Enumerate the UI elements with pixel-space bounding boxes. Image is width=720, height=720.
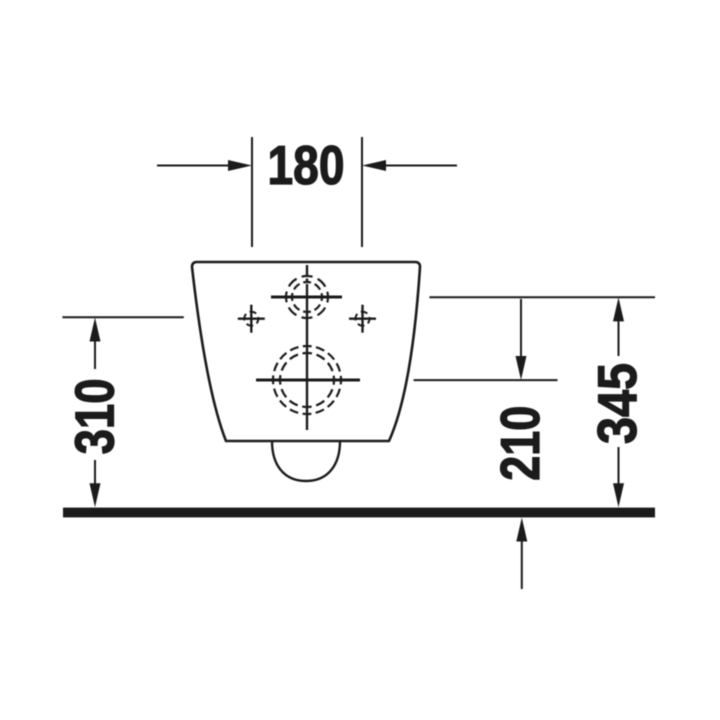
svg-text:180: 180 — [268, 134, 345, 196]
svg-text:310: 310 — [64, 378, 126, 454]
svg-text:210: 210 — [489, 406, 551, 481]
svg-text:345: 345 — [586, 363, 648, 444]
